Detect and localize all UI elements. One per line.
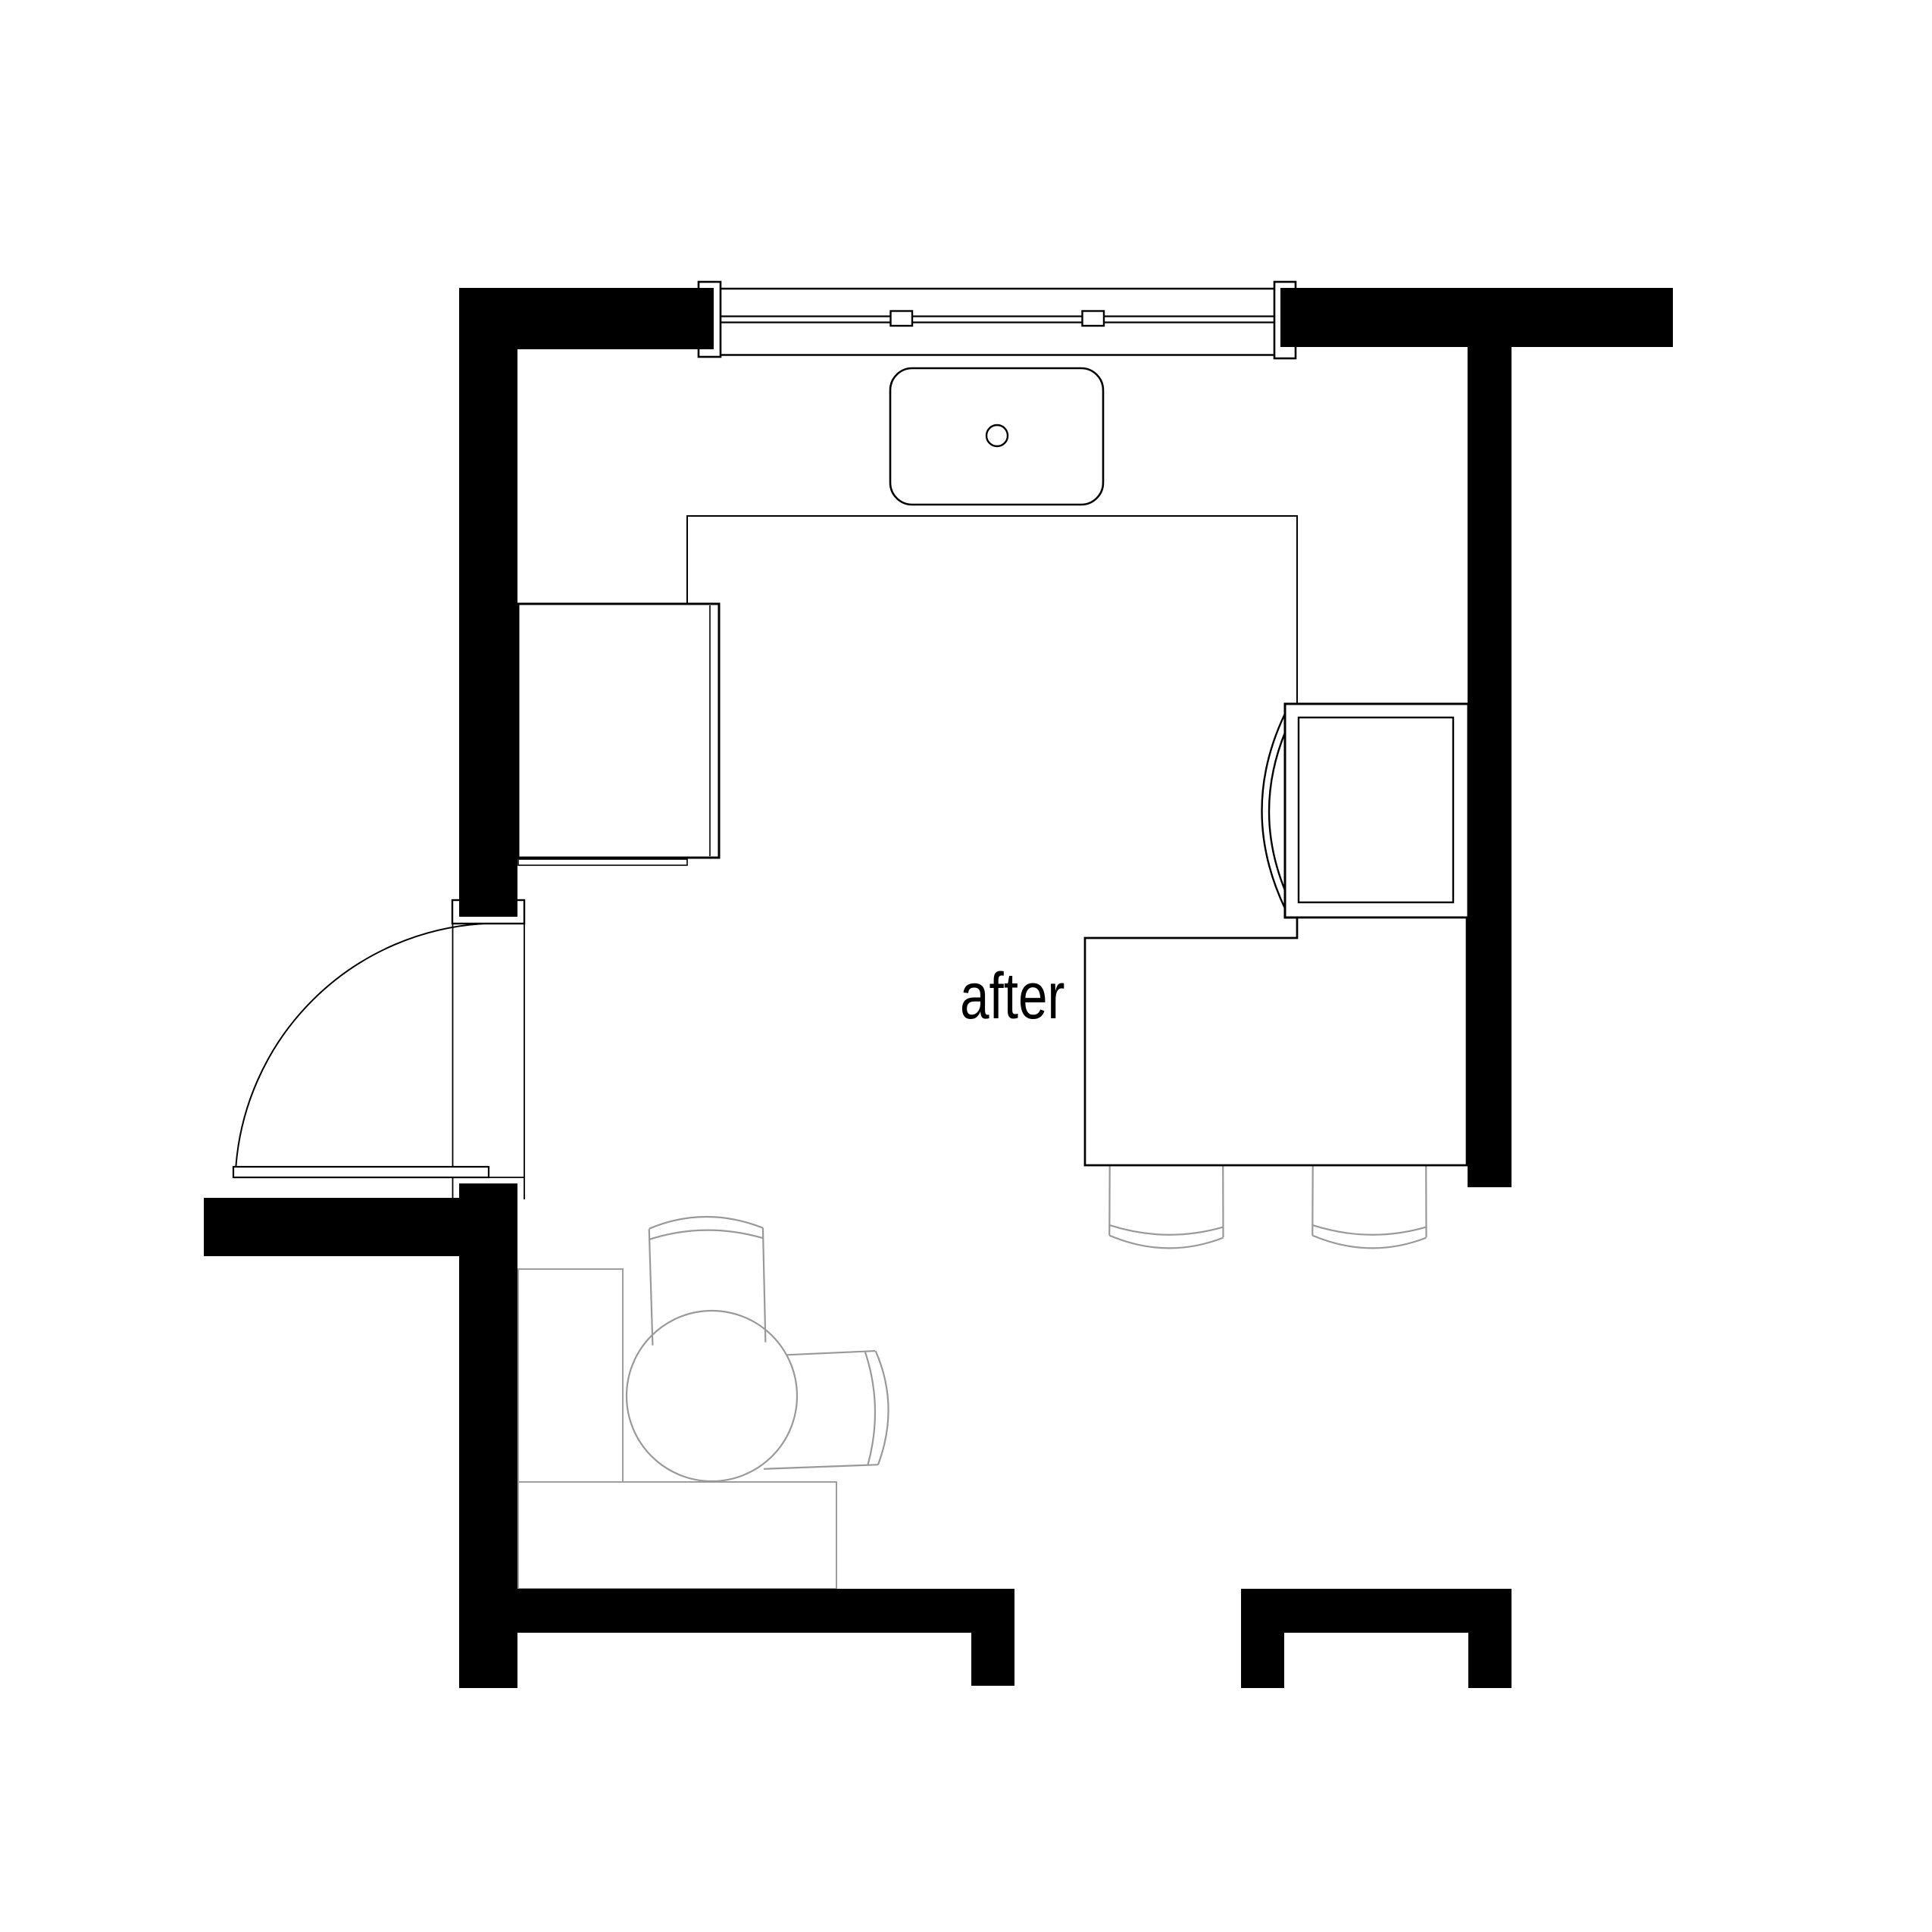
svg-text:after: after — [960, 959, 1064, 1033]
